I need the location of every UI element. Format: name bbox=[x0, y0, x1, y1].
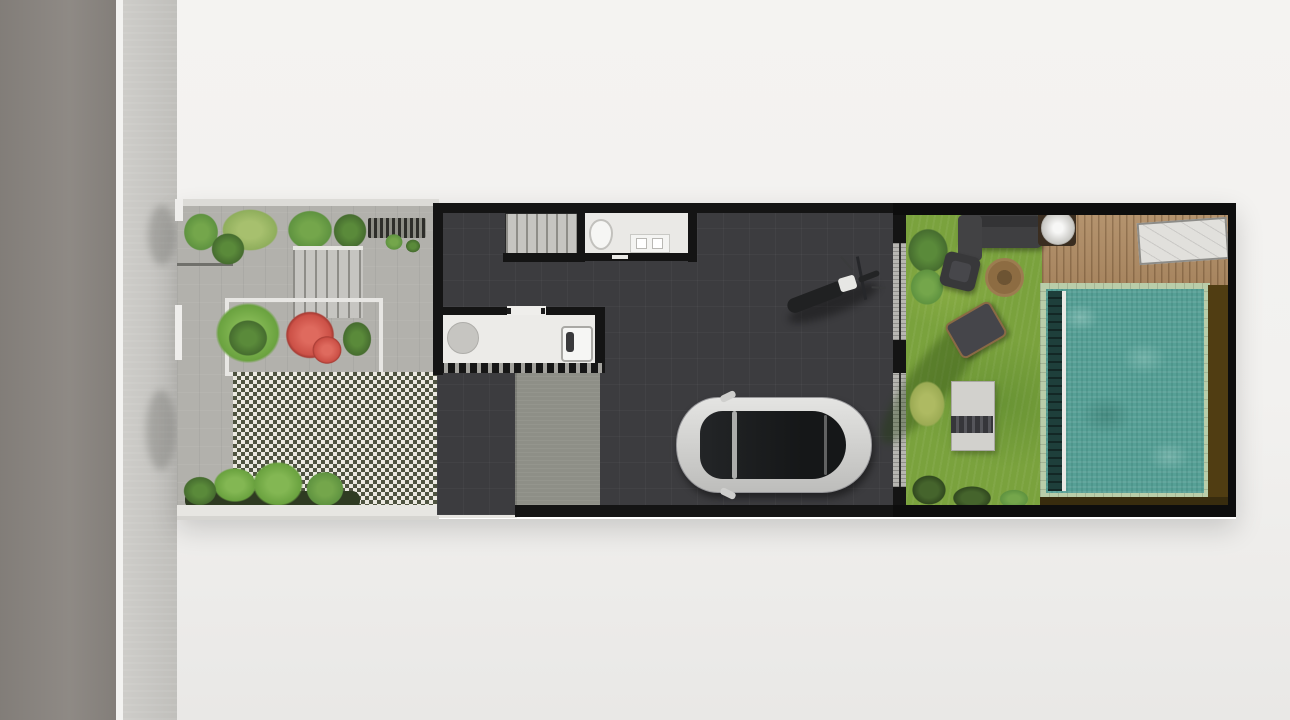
garden-table-slats bbox=[951, 416, 993, 433]
yellow-shrub bbox=[902, 372, 952, 436]
pool-water bbox=[1046, 289, 1204, 493]
edge-shrub bbox=[906, 470, 952, 510]
deck-round-table bbox=[1041, 211, 1075, 245]
backyard-wall-right bbox=[1228, 203, 1236, 517]
backyard-wall-top bbox=[893, 203, 1236, 215]
pool-overflow-trough bbox=[1048, 291, 1062, 491]
site-plan-render bbox=[0, 0, 1290, 720]
pool-edge-line bbox=[1062, 291, 1066, 491]
backyard bbox=[0, 0, 1290, 720]
fire-pit bbox=[985, 258, 1024, 297]
backyard-wall-bottom bbox=[893, 505, 1236, 517]
sun-lounger bbox=[1137, 217, 1230, 265]
side-deck-shadowed bbox=[1208, 285, 1228, 517]
